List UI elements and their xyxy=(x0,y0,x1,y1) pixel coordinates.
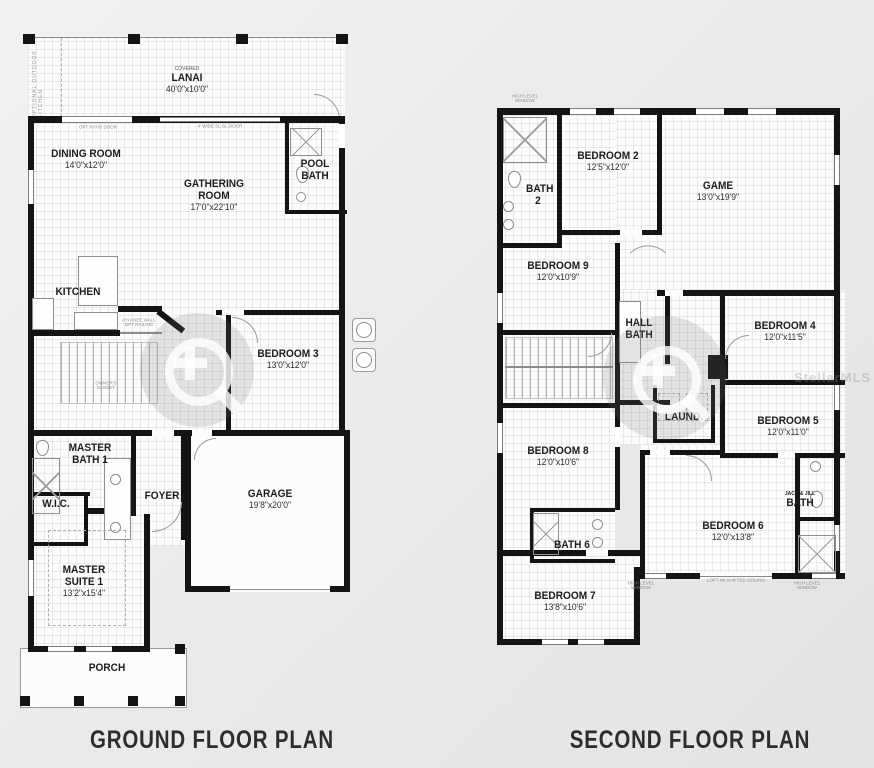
room-label-bedroom2: BEDROOM 2 12'5"x12'0" xyxy=(556,150,660,173)
room-label-game: GAME 13'0"x19'9" xyxy=(666,180,770,203)
zoom-watermark xyxy=(603,316,727,440)
porch-area xyxy=(20,648,187,708)
second-floor-plan: BATH 2 BEDROOM 2 12'5"x12'0" GAME 13'0"x… xyxy=(490,95,874,675)
wall xyxy=(118,306,162,312)
wall xyxy=(497,108,840,115)
room-label-bedroom4: BEDROOM 4 12'0"x11'5" xyxy=(733,320,837,343)
annotation: OWNER'S CLOSET xyxy=(88,382,124,391)
wall xyxy=(497,403,620,408)
annotation: HIGH LEVEL WINDOW xyxy=(788,582,826,591)
window xyxy=(62,116,132,123)
door-opening xyxy=(650,450,670,455)
sink xyxy=(503,219,514,230)
ac-unit xyxy=(352,318,376,342)
shower xyxy=(798,535,836,573)
post xyxy=(20,696,30,706)
wall xyxy=(144,514,150,652)
post xyxy=(23,34,35,44)
post xyxy=(74,696,84,706)
post xyxy=(175,696,185,706)
door-opening xyxy=(192,430,212,436)
floorplan-page: OPTIONAL OUTDOOR KITCHEN xyxy=(0,0,874,768)
fan-icon xyxy=(356,322,372,338)
door-opening xyxy=(339,124,345,148)
room-label-wic: W.I.C. xyxy=(30,498,82,510)
window xyxy=(642,573,666,579)
annotation: HIGH LEVEL WINDOW xyxy=(506,95,544,104)
door-opening xyxy=(620,230,642,235)
door-opening xyxy=(152,430,174,436)
wall xyxy=(497,243,562,248)
wall xyxy=(497,550,503,645)
window xyxy=(812,573,836,579)
post xyxy=(175,644,185,654)
room-label-bedroom7: BEDROOM 7 13'8"x10'6" xyxy=(513,590,617,613)
window xyxy=(748,108,776,115)
window xyxy=(696,108,724,115)
window xyxy=(497,293,503,323)
window xyxy=(86,646,112,652)
annotation: 4' WIDE SL GL DOOR xyxy=(175,125,265,130)
window xyxy=(614,108,640,115)
post xyxy=(128,696,138,706)
room-label-foyer: FOYER xyxy=(132,490,192,502)
second-floor-title: SECOND FLOOR PLAN xyxy=(559,726,821,755)
stair-rail xyxy=(505,366,613,368)
room-label-bedroom6: BEDROOM 6 12'0"x13'8" xyxy=(681,520,785,543)
wall xyxy=(557,108,562,245)
post xyxy=(336,34,348,44)
mls-watermark: StellarMLS xyxy=(794,370,871,385)
window xyxy=(578,639,604,645)
annotation: OPT PATIO DOOR xyxy=(71,126,125,131)
post xyxy=(236,34,248,44)
room-label-garage: GARAGE 19'8"x20'0" xyxy=(218,488,322,511)
wall xyxy=(795,517,840,521)
room-label-master-bath: MASTER BATH 1 xyxy=(60,442,120,466)
room-label-gathering: GATHERING ROOM 17'0"x22'10" xyxy=(162,178,266,213)
window xyxy=(28,560,34,596)
room-label-kitchen: KITCHEN xyxy=(38,286,118,298)
room-label-master-suite: MASTER SUITE 1 13'2"x15'4" xyxy=(40,564,128,599)
room-label-bedroom5: BEDROOM 5 12'0"x11'0" xyxy=(736,415,840,438)
room-label-porch: PORCH xyxy=(62,662,152,674)
sink xyxy=(503,201,514,212)
wall xyxy=(657,290,840,296)
room-label-bedroom9: BEDROOM 9 12'0"x10'9" xyxy=(506,260,610,283)
wall xyxy=(131,436,136,516)
ground-floor-plan: OPTIONAL OUTDOOR KITCHEN xyxy=(20,30,404,730)
room-label-bath6: BATH 6 xyxy=(540,539,604,551)
room-label-bedroom8: BEDROOM 8 12'0"x10'6" xyxy=(506,445,610,468)
wall xyxy=(344,436,350,592)
window xyxy=(497,423,503,453)
shower xyxy=(290,128,322,156)
wall xyxy=(640,450,645,579)
window xyxy=(48,646,74,652)
plus-icon xyxy=(185,346,195,380)
door-opening xyxy=(615,427,620,447)
wall xyxy=(28,116,34,436)
room-label-dining: DINING ROOM 14'0"x12'0" xyxy=(36,148,136,171)
fan-icon xyxy=(356,352,372,368)
room-label-lanai: COVERED LANAI 40'0"x10'0" xyxy=(120,66,254,95)
sliding-door xyxy=(160,117,280,122)
sink xyxy=(810,461,821,472)
wall xyxy=(181,436,187,540)
sink xyxy=(296,192,306,202)
window xyxy=(834,155,840,185)
window xyxy=(28,170,34,204)
ac-unit xyxy=(352,348,376,372)
sink xyxy=(110,474,121,485)
room-label-jack-jill-bath: JACK & JILL BATH xyxy=(768,491,832,509)
kitchen-counter xyxy=(32,298,54,330)
plus-icon xyxy=(653,354,663,388)
opening-line xyxy=(700,576,772,577)
wall xyxy=(557,230,662,235)
garage-door-line xyxy=(230,589,330,590)
wall xyxy=(285,210,347,214)
lanai-edge xyxy=(28,37,345,38)
wall xyxy=(497,639,640,645)
annotation: 4'H KNEE WALL OPT RAILING xyxy=(118,319,159,328)
kitchen-island xyxy=(78,256,118,306)
window xyxy=(542,639,568,645)
window xyxy=(570,108,596,115)
annotation: LOFT W/ SHIFTED CEILING xyxy=(705,579,766,584)
outdoor-kitchen-note: OPTIONAL OUTDOOR KITCHEN xyxy=(32,44,44,118)
ground-floor-title: GROUND FLOOR PLAN xyxy=(81,726,343,755)
sink xyxy=(592,519,603,530)
wall xyxy=(530,559,615,563)
room-label-bath2: BATH 2 xyxy=(520,183,556,207)
annotation: HIGH LEVEL WINDOW xyxy=(622,582,660,591)
room-label-pool-bath: POOL BATH xyxy=(289,158,341,182)
kitchen-counter xyxy=(74,312,118,330)
post xyxy=(128,34,140,44)
wall xyxy=(530,508,615,512)
shower xyxy=(503,117,547,163)
zoom-watermark xyxy=(140,313,254,427)
wall xyxy=(28,330,120,336)
